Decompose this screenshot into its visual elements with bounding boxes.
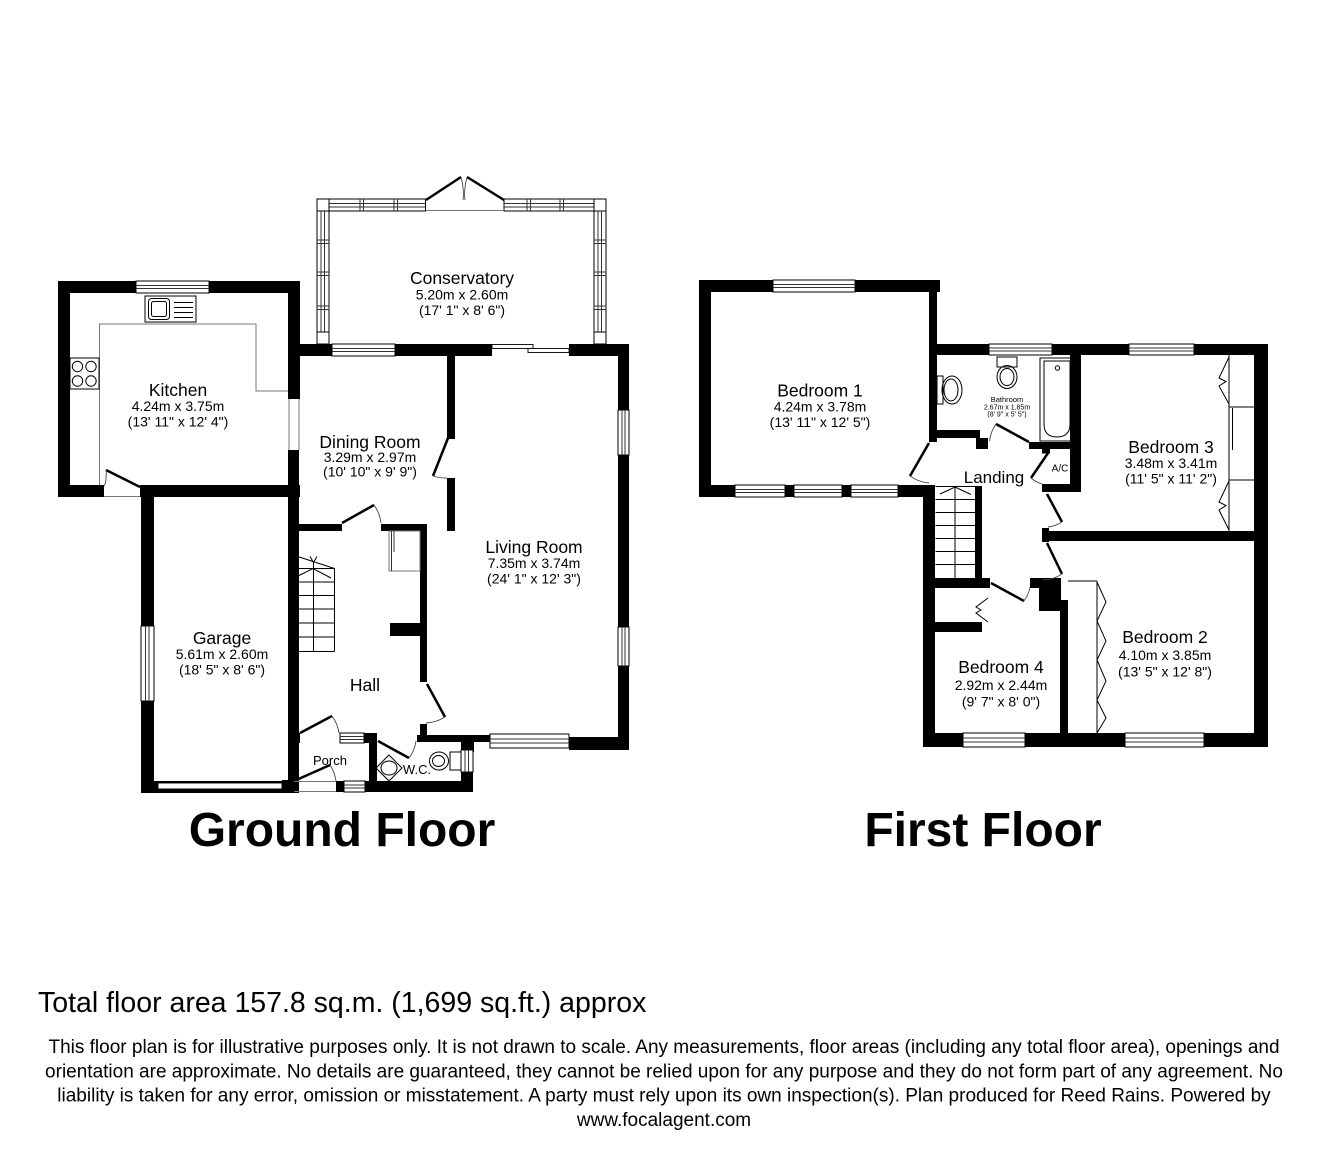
- svg-text:This floor plan is for illustr: This floor plan is for illustrative purp…: [48, 1037, 1279, 1058]
- svg-text:Living Room: Living Room: [485, 537, 582, 557]
- svg-text:Conservatory: Conservatory: [410, 268, 514, 288]
- svg-text:Bathroom: Bathroom: [991, 395, 1024, 404]
- svg-text:(13' 11" x 12' 4"): (13' 11" x 12' 4"): [128, 414, 229, 430]
- svg-text:(17' 1" x 8' 6"): (17' 1" x 8' 6"): [419, 302, 505, 318]
- svg-text:First Floor: First Floor: [864, 804, 1101, 857]
- svg-text:(18' 5" x 8' 6"): (18' 5" x 8' 6"): [179, 662, 265, 678]
- svg-text:(8' 9" x 5' 5"): (8' 9" x 5' 5"): [987, 412, 1026, 419]
- svg-text:(24' 1" x 12' 3"): (24' 1" x 12' 3"): [487, 571, 581, 587]
- svg-text:Total floor area 157.8 sq.m. (: Total floor area 157.8 sq.m. (1,699 sq.f…: [38, 987, 646, 1019]
- svg-text:2.92m x 2.44m: 2.92m x 2.44m: [955, 677, 1048, 693]
- svg-text:(11' 5" x 11' 2"): (11' 5" x 11' 2"): [1125, 471, 1217, 487]
- svg-text:Bedroom 3: Bedroom 3: [1128, 437, 1214, 457]
- svg-text:Garage: Garage: [193, 628, 251, 648]
- svg-text:(13' 11" x 12' 5"): (13' 11" x 12' 5"): [770, 414, 871, 430]
- svg-text:A/C: A/C: [1052, 464, 1069, 475]
- svg-text:Porch: Porch: [313, 753, 347, 768]
- svg-text:4.10m x 3.85m: 4.10m x 3.85m: [1119, 647, 1212, 663]
- svg-text:Landing: Landing: [964, 468, 1025, 487]
- svg-text:www.focalagent.com: www.focalagent.com: [576, 1110, 751, 1131]
- svg-text:7.35m x 3.74m: 7.35m x 3.74m: [488, 555, 581, 571]
- svg-text:W.C.: W.C.: [403, 762, 431, 777]
- svg-text:orientation are approximate. N: orientation are approximate. No details …: [45, 1061, 1283, 1082]
- svg-text:5.61m x 2.60m: 5.61m x 2.60m: [176, 646, 269, 662]
- svg-text:(10' 10" x 9' 9"): (10' 10" x 9' 9"): [323, 464, 417, 480]
- svg-text:(9' 7" x 8' 0"): (9' 7" x 8' 0"): [962, 694, 1040, 710]
- svg-text:(13' 5" x 12' 8"): (13' 5" x 12' 8"): [1118, 664, 1212, 680]
- svg-text:liability is taken for any err: liability is taken for any error, omissi…: [57, 1086, 1271, 1107]
- svg-text:Ground Floor: Ground Floor: [189, 804, 496, 857]
- svg-text:5.20m x 2.60m: 5.20m x 2.60m: [416, 287, 509, 303]
- svg-text:Kitchen: Kitchen: [149, 380, 207, 400]
- svg-text:2.67m x 1.85m: 2.67m x 1.85m: [984, 405, 1030, 412]
- svg-text:Bedroom 4: Bedroom 4: [958, 657, 1044, 677]
- svg-text:Hall: Hall: [350, 675, 380, 695]
- svg-text:3.48m x 3.41m: 3.48m x 3.41m: [1125, 455, 1218, 471]
- svg-text:Bedroom 1: Bedroom 1: [777, 381, 863, 401]
- svg-text:Bedroom 2: Bedroom 2: [1122, 627, 1208, 647]
- svg-text:4.24m x 3.78m: 4.24m x 3.78m: [774, 399, 867, 415]
- svg-text:4.24m x 3.75m: 4.24m x 3.75m: [132, 398, 225, 414]
